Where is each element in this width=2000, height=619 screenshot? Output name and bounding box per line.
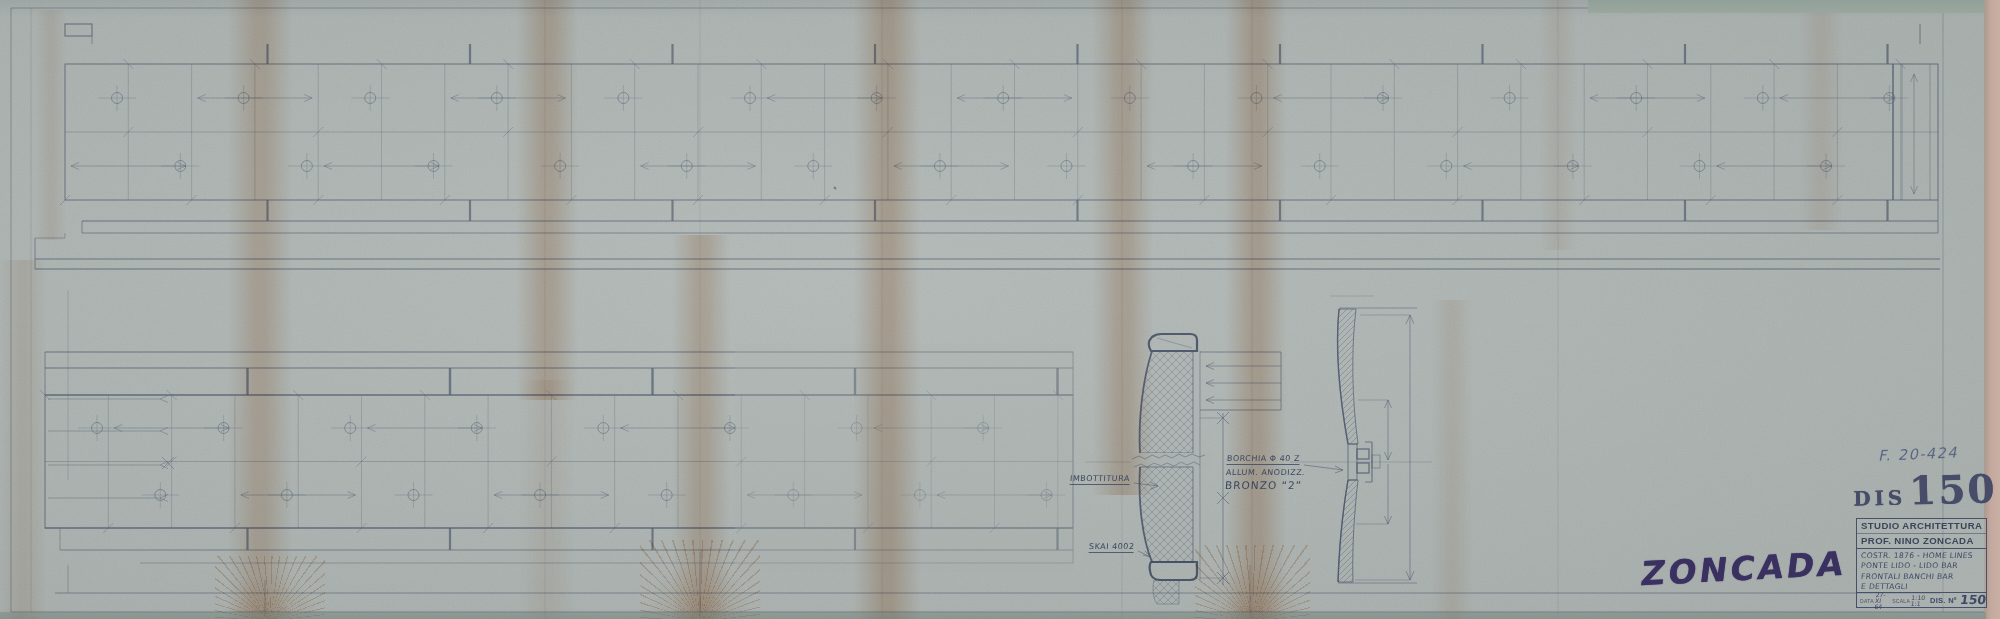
project-line: PONTE LIDO - LIDO BAR <box>1861 561 1987 571</box>
project-line: COSTR. 1876 - HOME LINES <box>1861 551 1987 561</box>
scale-value: 1:10 1:1 <box>1910 595 1925 607</box>
annotation-borchia-line3: BRONZO “2” <box>1225 479 1305 493</box>
faded-pencil-wash <box>735 344 1075 572</box>
title-block-studio: STUDIO ARCHITETTURA <box>1857 519 1986 534</box>
sheet-bottom-edge <box>0 612 1986 619</box>
title-block-footer: DATA 27-XI 64 SCALA 1:10 1:1 DIS. Nº 150 <box>1857 592 1986 608</box>
section-tail <box>1153 580 1179 604</box>
annotation-borchia-line1: BORCHIA Φ 40 Z <box>1227 454 1301 465</box>
title-block-architect: PROF. NINO ZONCADA <box>1857 534 1986 549</box>
date-label: DATA <box>1860 598 1874 604</box>
title-block: STUDIO ARCHITETTURA PROF. NINO ZONCADA C… <box>1856 518 1987 608</box>
annotation-imbottitura: IMBOTTITURA <box>1070 474 1130 483</box>
date-value: 27-XI 64 <box>1874 592 1890 610</box>
date-top: 27-XI <box>1874 591 1885 604</box>
backing-strip-top <box>1588 0 2000 13</box>
dis-stamp-prefix: DIS <box>1853 488 1907 509</box>
scale-label: SCALA <box>1892 598 1910 604</box>
pencil-drawing-layer <box>0 0 2000 619</box>
blueprint-sheet: IMBOTTITURA SKAI 4002 BORCHIA Φ 40 Z ALL… <box>0 0 2000 619</box>
annotation-skai: SKAI 4002 <box>1089 542 1135 551</box>
title-block-project: COSTR. 1876 - HOME LINES PONTE LIDO - LI… <box>1857 549 1986 592</box>
drawing-number-stamp: DIS 150 <box>1853 472 1997 509</box>
project-line: FRONTALI BANCHI BAR <box>1861 572 1987 582</box>
annotation-skai-text: SKAI 4002 <box>1089 542 1135 553</box>
number-label: DIS. Nº <box>1930 596 1957 605</box>
number-value: 150 <box>1959 594 1987 607</box>
scale-bottom: 1:1 <box>1910 600 1921 607</box>
annotation-imbottitura-text: IMBOTTITURA <box>1070 474 1131 485</box>
annotation-borchia-line2: ALLUM. ANODIZZ. <box>1226 466 1306 480</box>
date-bottom: 64 <box>1874 603 1883 610</box>
annotation-borchia: BORCHIA Φ 40 Z ALLUM. ANODIZZ. BRONZO “2… <box>1225 452 1307 493</box>
dis-stamp-number: 150 <box>1909 472 1997 507</box>
